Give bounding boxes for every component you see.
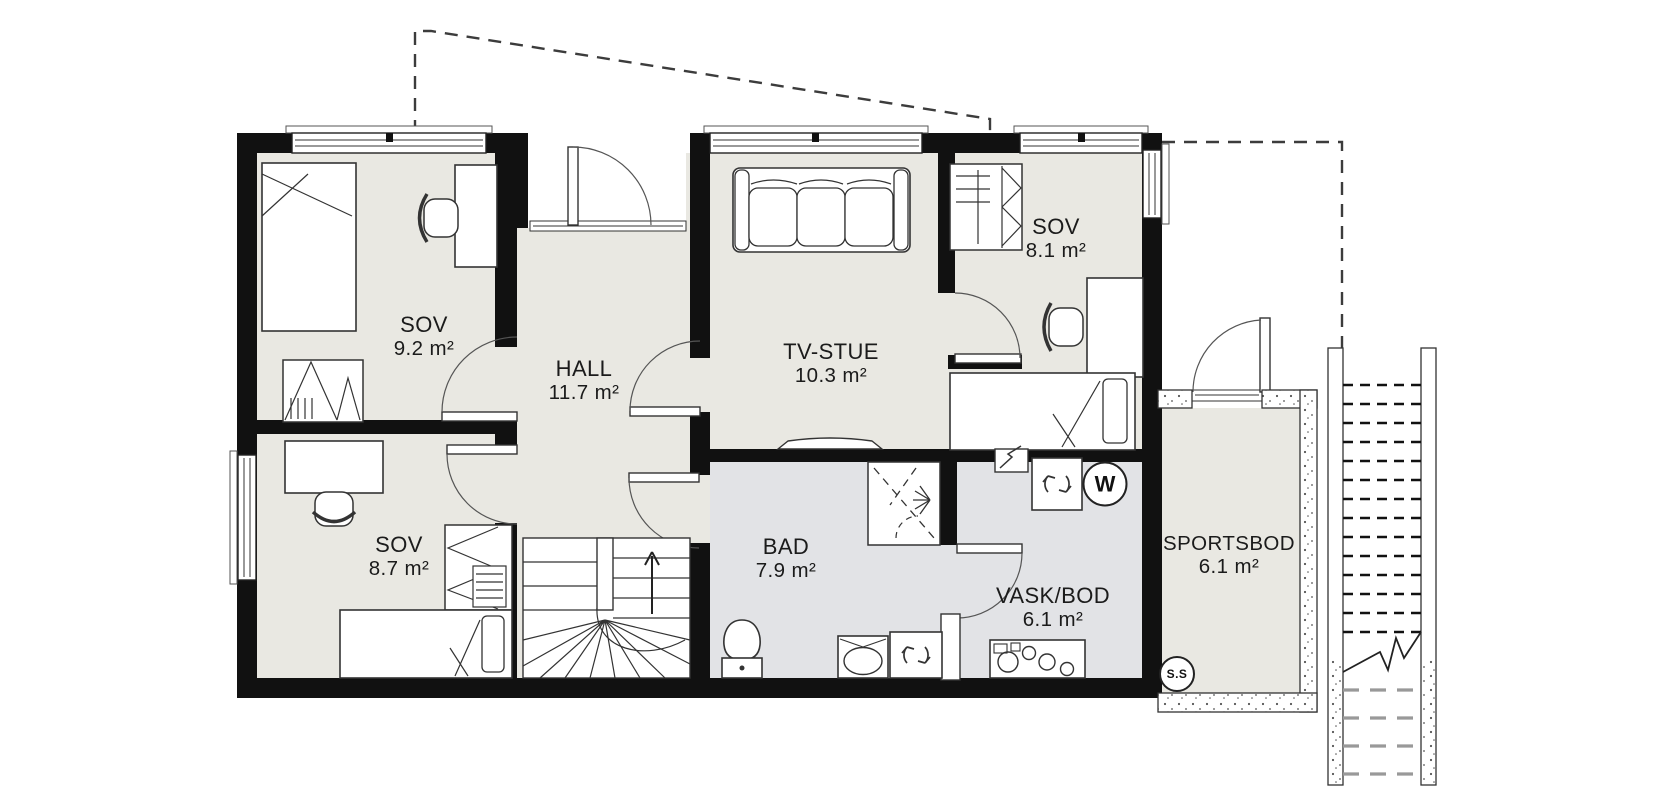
bed-sov2 xyxy=(950,373,1135,450)
floor-plan: SOV 9.2 m² HALL 11.7 m² TV-STUE 10.3 m² … xyxy=(0,0,1670,800)
external-staircase xyxy=(1328,348,1436,785)
roof-overhang-dashed-line xyxy=(415,31,990,141)
floor-plan-drawing xyxy=(0,0,1670,800)
room-label-sov-top-right: SOV 8.1 m² xyxy=(1026,215,1087,263)
wall-bad-vask xyxy=(940,462,957,545)
terrace-outline-dashed xyxy=(1162,142,1342,349)
desk-sov3 xyxy=(285,441,383,493)
toilet xyxy=(722,620,762,678)
electrical-panel-icon xyxy=(995,446,1028,472)
dryer xyxy=(1032,458,1082,510)
chair-sov3 xyxy=(313,492,355,526)
door-sportsbod xyxy=(1192,318,1270,401)
wall-sov1-sov3 xyxy=(237,420,517,434)
room-label-bad: BAD 7.9 m² xyxy=(756,535,817,583)
desk-sov2 xyxy=(1087,278,1143,377)
room-label-sportsbod: SPORTSBOD 6.1 m² xyxy=(1163,533,1295,579)
sofa xyxy=(733,168,910,252)
tv xyxy=(778,438,882,449)
window-sov3 xyxy=(238,455,256,580)
exterior-wall-left xyxy=(237,133,257,698)
washing-machine-badge: W xyxy=(1083,462,1128,507)
door-frame-vask xyxy=(941,614,960,680)
bathroom-sink xyxy=(838,636,888,678)
break-line xyxy=(1343,632,1421,672)
room-label-vask-bod: VASK/BOD 6.1 m² xyxy=(996,584,1110,632)
bed-sov3 xyxy=(340,610,512,678)
room-label-tv-stue: TV-STUE 10.3 m² xyxy=(783,340,879,388)
wall-stair-bad xyxy=(690,543,710,678)
wall-sov1-hall xyxy=(495,153,517,347)
window-sov2-right xyxy=(1143,150,1161,218)
entry-porch-floor xyxy=(528,133,686,228)
exterior-wall-bottom xyxy=(237,678,1162,698)
wardrobe-sov1 xyxy=(283,360,363,422)
shower xyxy=(868,462,940,545)
room-label-sov-bottom-left: SOV 8.7 m² xyxy=(369,533,430,581)
room-label-hall: HALL 11.7 m² xyxy=(549,357,620,405)
washing-machine-bad xyxy=(890,632,942,678)
laundry-counter xyxy=(990,640,1085,678)
desk-sov1 xyxy=(455,165,497,267)
wardrobe-sov3 xyxy=(445,525,512,610)
hall-staircase xyxy=(523,538,690,678)
stair-symbol-badge: S.S xyxy=(1159,656,1195,692)
room-label-sov-top-left: SOV 9.2 m² xyxy=(394,313,455,361)
wardrobe-sov2 xyxy=(950,164,1022,250)
wall-hall-tvstue xyxy=(690,133,710,358)
bed-sov1 xyxy=(262,163,356,331)
